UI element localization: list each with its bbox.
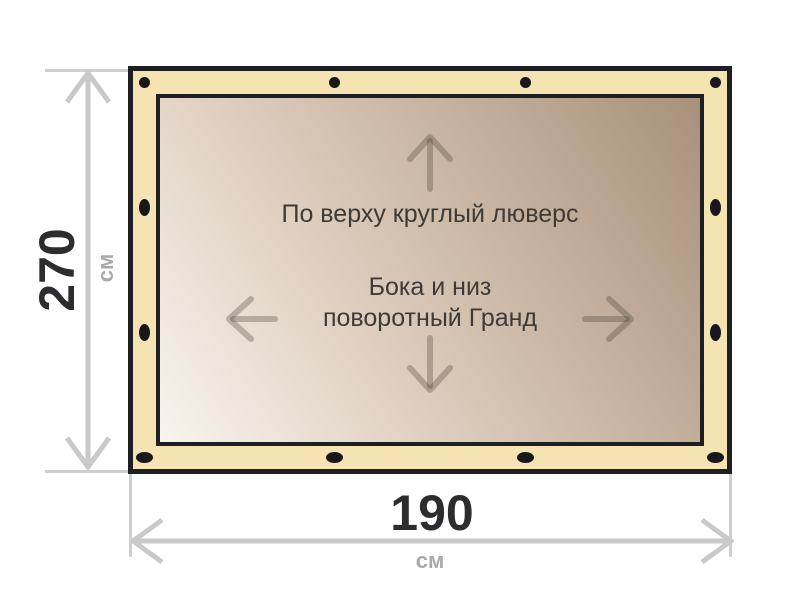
height-value: 270 [28, 228, 86, 311]
grommet-icon [520, 77, 531, 88]
grommet-icon [710, 77, 721, 88]
banner [128, 66, 732, 474]
sides-bottom-note: Бока и низ поворотный Гранд [130, 272, 730, 334]
grommet-icon [139, 77, 150, 88]
extension-line [45, 470, 128, 473]
grommet-icon [329, 77, 340, 88]
up-arrow-icon [406, 133, 454, 193]
top-edge-note: По верху круглый люверс [130, 201, 730, 227]
grommet-icon [517, 452, 534, 463]
width-value: 190 [390, 484, 473, 542]
sides-bottom-note-line1: Бока и низ [130, 272, 730, 303]
banner-size-diagram: По верху круглый люверс Бока и низ повор… [0, 0, 800, 600]
grommet-icon [326, 452, 343, 463]
grommet-icon [707, 452, 724, 463]
sides-bottom-note-line2: поворотный Гранд [130, 303, 730, 334]
width-unit: см [416, 548, 445, 574]
grommet-icon [136, 452, 153, 463]
height-unit: см [93, 254, 119, 283]
down-arrow-icon [406, 334, 454, 394]
